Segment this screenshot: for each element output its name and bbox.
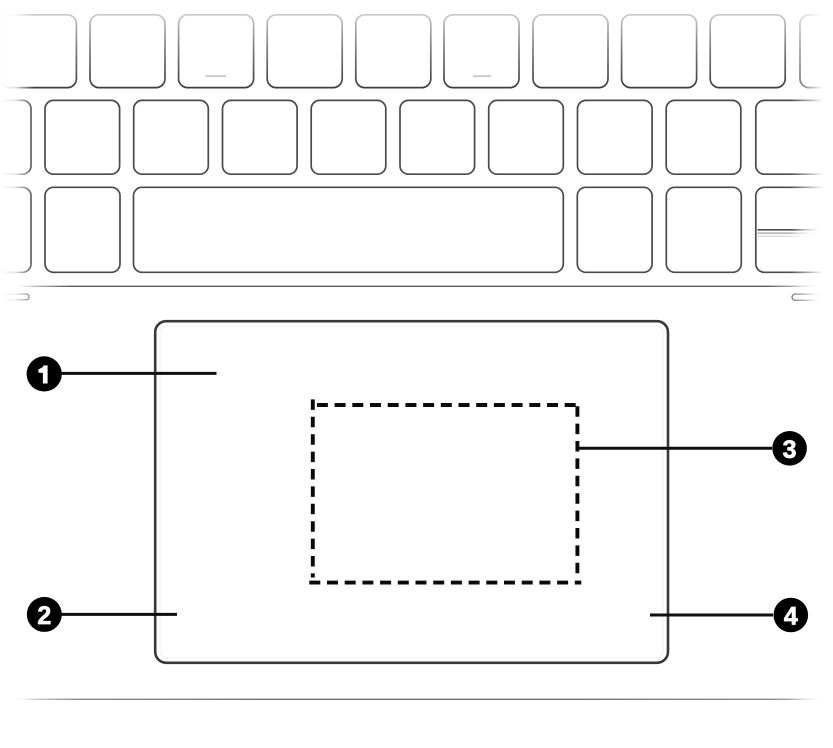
svg-text:4: 4: [784, 603, 798, 631]
svg-text:2: 2: [37, 602, 51, 630]
svg-text:3: 3: [783, 436, 797, 464]
